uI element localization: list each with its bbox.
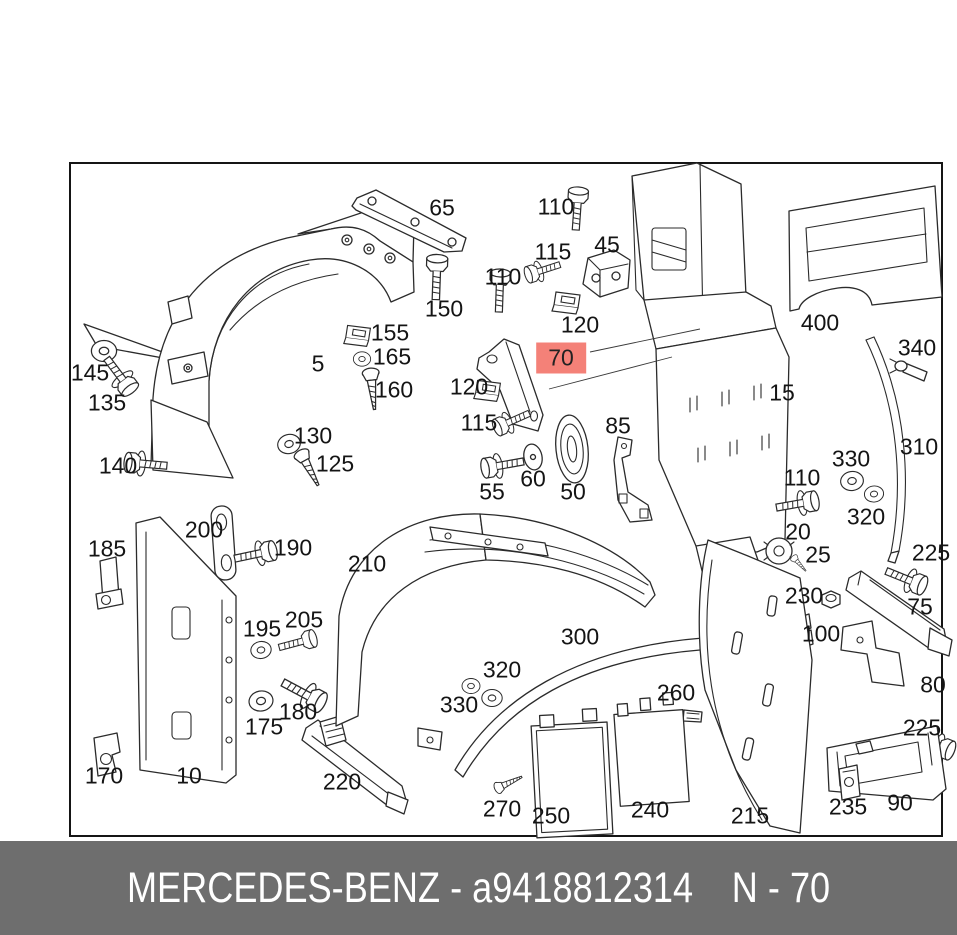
footer-bar: MERCEDES-BENZ - a9418812314N - 70 — [0, 841, 957, 935]
footer-separator: - — [440, 864, 472, 913]
footer-text: MERCEDES-BENZ - a9418812314N - 70 — [127, 864, 830, 913]
hardware-top-middle-group — [474, 186, 630, 439]
hardware-center-group — [336, 514, 812, 838]
footer-brand: MERCEDES-BENZ — [127, 864, 440, 913]
footer-part-number: a9418812314 — [472, 864, 693, 913]
parts-catalog-page: 6511045115120110150155165516014513513012… — [0, 0, 957, 935]
part-drawing-panel-400 — [789, 186, 942, 311]
parts-illustration — [0, 0, 957, 935]
part-drawing-panel-15 — [632, 163, 789, 579]
part-drawing-rivet-340 — [890, 359, 927, 381]
footer-note: N - 70 — [732, 864, 830, 913]
